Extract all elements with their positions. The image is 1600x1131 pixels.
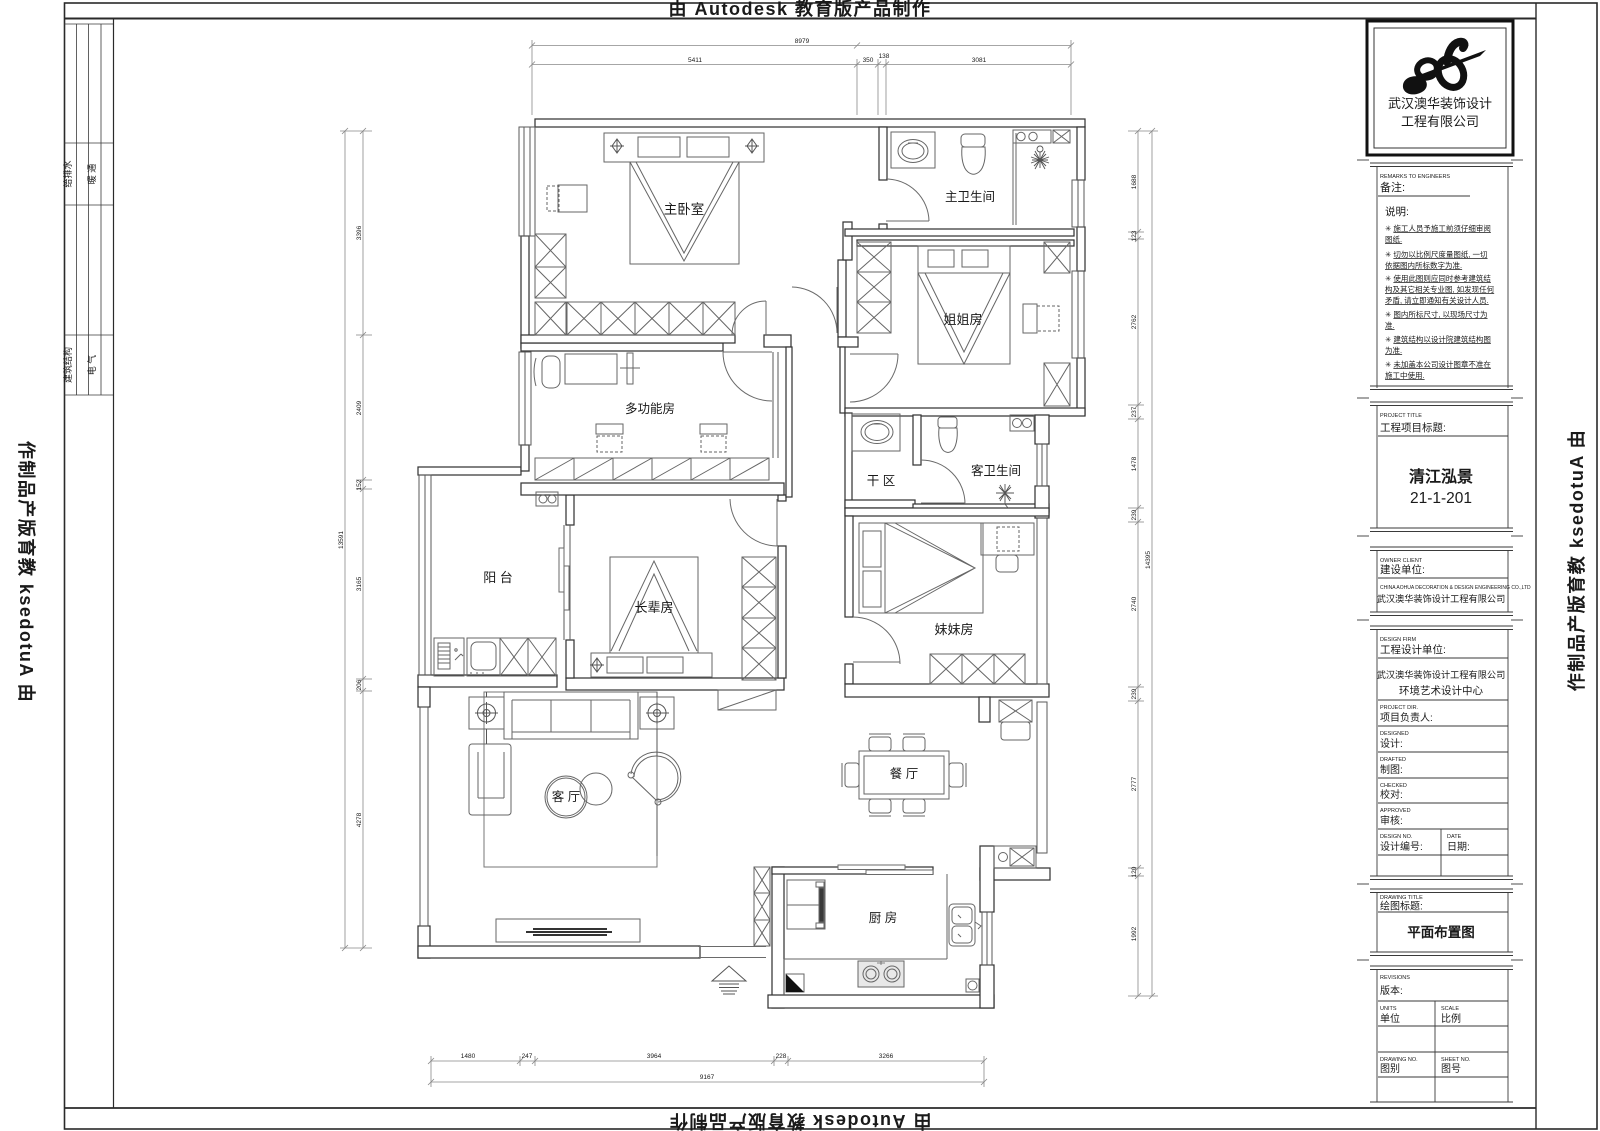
svg-text:图纸.: 图纸. — [1385, 234, 1402, 244]
svg-text:给排水: 给排水 — [62, 160, 73, 187]
svg-text:152: 152 — [356, 479, 363, 490]
svg-text:REVISIONS: REVISIONS — [1380, 975, 1410, 981]
svg-text:14395: 14395 — [1145, 551, 1152, 569]
svg-text:为准.: 为准. — [1385, 345, 1402, 355]
svg-text:工程项目标题:: 工程项目标题: — [1380, 422, 1446, 434]
svg-text:平面布置图: 平面布置图 — [1407, 924, 1475, 940]
svg-text:绘图标题:: 绘图标题: — [1380, 900, 1423, 913]
svg-text:姐姐房: 姐姐房 — [943, 312, 982, 327]
svg-text:制图:: 制图: — [1380, 763, 1403, 776]
svg-text:主卧室: 主卧室 — [664, 201, 705, 217]
svg-text:120: 120 — [1131, 866, 1138, 877]
svg-text:4278: 4278 — [356, 812, 363, 827]
svg-text:设计编号:: 设计编号: — [1380, 840, 1423, 853]
svg-text:设计:: 设计: — [1380, 737, 1403, 750]
svg-text:妹妹房: 妹妹房 — [934, 622, 973, 637]
svg-text:比例: 比例 — [1441, 1012, 1461, 1025]
svg-text:1688: 1688 — [1131, 174, 1138, 189]
svg-text:备注:: 备注: — [1380, 180, 1405, 194]
svg-text:239: 239 — [1131, 509, 1138, 520]
svg-text:247: 247 — [522, 1053, 533, 1060]
svg-text:厨 房: 厨 房 — [869, 910, 897, 925]
svg-text:CHECKED: CHECKED — [1380, 783, 1407, 789]
svg-text:作制品产版育教 ksedotuA 由: 作制品产版育教 ksedotuA 由 — [16, 441, 37, 703]
svg-text:构及其它相关专业图, 如发现任何: 构及其它相关专业图, 如发现任何 — [1385, 284, 1495, 294]
svg-text:长辈房: 长辈房 — [634, 600, 673, 615]
svg-text:3165: 3165 — [356, 576, 363, 591]
svg-text:审核:: 审核: — [1380, 814, 1403, 827]
svg-text:客 厅: 客 厅 — [552, 789, 580, 804]
svg-text:主卫生间: 主卫生间 — [945, 190, 995, 204]
svg-text:建设单位:: 建设单位: — [1380, 563, 1425, 576]
svg-text:123: 123 — [1131, 230, 1138, 241]
svg-text:清江泓景: 清江泓景 — [1409, 468, 1473, 486]
svg-text:项目负责人:: 项目负责人: — [1380, 711, 1433, 724]
svg-text:2762: 2762 — [1131, 314, 1138, 329]
svg-text:作制品产版育教 ksedotuA 由: 作制品产版育教 ksedotuA 由 — [1566, 429, 1587, 691]
svg-text:图别: 图别 — [1380, 1063, 1400, 1075]
svg-text:✳ 未加盖本公司设计图章不准在: ✳ 未加盖本公司设计图章不准在 — [1385, 359, 1491, 369]
svg-text:建筑结构: 建筑结构 — [62, 347, 73, 383]
svg-text:SCALE: SCALE — [1441, 1006, 1459, 1012]
svg-text:DESIGNED: DESIGNED — [1380, 731, 1409, 737]
svg-text:1478: 1478 — [1131, 456, 1138, 471]
svg-text:✳ 施工人员予施工前须仔细审阅: ✳ 施工人员予施工前须仔细审阅 — [1385, 223, 1491, 233]
svg-text:138: 138 — [879, 53, 890, 60]
svg-text:图号: 图号 — [1441, 1063, 1461, 1075]
svg-text:PROJECT DIR.: PROJECT DIR. — [1380, 705, 1419, 711]
svg-text:✳ 切勿以比例尺度量图纸, 一切: ✳ 切勿以比例尺度量图纸, 一切 — [1385, 249, 1488, 259]
svg-text:DATE: DATE — [1447, 834, 1462, 840]
svg-text:3081: 3081 — [972, 57, 987, 64]
svg-text:2777: 2777 — [1131, 776, 1138, 791]
svg-text:CHINA AOHUA DECORATION & DESIG: CHINA AOHUA DECORATION & DESIGN ENGINEER… — [1380, 585, 1531, 591]
svg-text:DRAFTED: DRAFTED — [1380, 757, 1406, 763]
svg-text:多功能房: 多功能房 — [625, 401, 675, 416]
svg-text:2409: 2409 — [356, 400, 363, 415]
svg-text:电 气: 电 气 — [86, 355, 97, 376]
svg-text:PROJECT TITLE: PROJECT TITLE — [1380, 413, 1422, 419]
svg-text:237: 237 — [1131, 406, 1138, 417]
svg-text:8979: 8979 — [795, 38, 810, 45]
svg-text:206: 206 — [356, 679, 363, 690]
svg-text:暖 通: 暖 通 — [86, 164, 97, 185]
svg-text:校对:: 校对: — [1380, 788, 1403, 801]
svg-text:干 区: 干 区 — [867, 474, 895, 488]
svg-text:✳ 图内所标尺寸, 以现场尺寸为: ✳ 图内所标尺寸, 以现场尺寸为 — [1385, 309, 1488, 319]
svg-text:版本:: 版本: — [1380, 984, 1403, 997]
svg-text:2740: 2740 — [1131, 596, 1138, 611]
svg-text:21-1-201: 21-1-201 — [1410, 490, 1472, 507]
svg-text:阳 台: 阳 台 — [483, 570, 513, 585]
svg-text:5411: 5411 — [688, 57, 702, 64]
svg-text:单位: 单位 — [1380, 1012, 1400, 1025]
svg-text:客卫生间: 客卫生间 — [971, 463, 1021, 478]
svg-text:3396: 3396 — [356, 225, 363, 240]
svg-text:武汉澳华装饰设计: 武汉澳华装饰设计 — [1388, 96, 1492, 111]
svg-text:✳ 使用此图则应同时参考建筑结: ✳ 使用此图则应同时参考建筑结 — [1385, 273, 1491, 283]
svg-text:228: 228 — [776, 1053, 787, 1060]
svg-text:依据图内所标数字为准.: 依据图内所标数字为准. — [1385, 260, 1462, 270]
svg-text:SHEET NO.: SHEET NO. — [1441, 1057, 1471, 1063]
svg-text:1992: 1992 — [1131, 926, 1138, 941]
svg-text:13591: 13591 — [338, 531, 345, 549]
svg-text:工程设计单位:: 工程设计单位: — [1380, 643, 1446, 656]
svg-text:由 Autodesk 教育版产品制作: 由 Autodesk 教育版产品制作 — [668, 1111, 931, 1131]
svg-text:1480: 1480 — [461, 1053, 476, 1060]
svg-text:239: 239 — [1131, 688, 1138, 699]
svg-text:APPROVED: APPROVED — [1380, 808, 1411, 814]
svg-text:说明:: 说明: — [1385, 205, 1409, 218]
svg-text:3266: 3266 — [879, 1053, 894, 1060]
svg-text:DESIGN NO.: DESIGN NO. — [1380, 834, 1413, 840]
svg-text:由 Autodesk 教育版产品制作: 由 Autodesk 教育版产品制作 — [668, 0, 931, 19]
svg-text:9167: 9167 — [700, 1074, 715, 1081]
svg-text:3964: 3964 — [647, 1053, 662, 1060]
svg-text:施工中使用.: 施工中使用. — [1385, 370, 1425, 380]
svg-text:工程有限公司: 工程有限公司 — [1401, 114, 1479, 129]
svg-text:DRAWING NO.: DRAWING NO. — [1380, 1057, 1418, 1063]
svg-text:武汉澳华装饰设计工程有限公司: 武汉澳华装饰设计工程有限公司 — [1377, 669, 1506, 680]
svg-text:REMARKS TO ENGINEERS: REMARKS TO ENGINEERS — [1380, 174, 1450, 180]
svg-text:武汉澳华装饰设计工程有限公司: 武汉澳华装饰设计工程有限公司 — [1377, 593, 1506, 604]
svg-text:DRAWING TITLE: DRAWING TITLE — [1380, 895, 1423, 901]
svg-text:✳ 建筑结构以设计院建筑结构图: ✳ 建筑结构以设计院建筑结构图 — [1385, 334, 1491, 344]
svg-text:准.: 准. — [1385, 320, 1395, 330]
svg-text:矛盾, 请立即通知有关设计人员.: 矛盾, 请立即通知有关设计人员. — [1385, 295, 1489, 305]
svg-text:环境艺术设计中心: 环境艺术设计中心 — [1399, 684, 1483, 697]
svg-text:日期:: 日期: — [1447, 841, 1470, 853]
svg-text:餐 厅: 餐 厅 — [890, 766, 918, 781]
svg-text:UNITS: UNITS — [1380, 1006, 1397, 1012]
svg-text:DESIGN FIRM: DESIGN FIRM — [1380, 637, 1416, 643]
svg-text:350: 350 — [863, 57, 874, 64]
